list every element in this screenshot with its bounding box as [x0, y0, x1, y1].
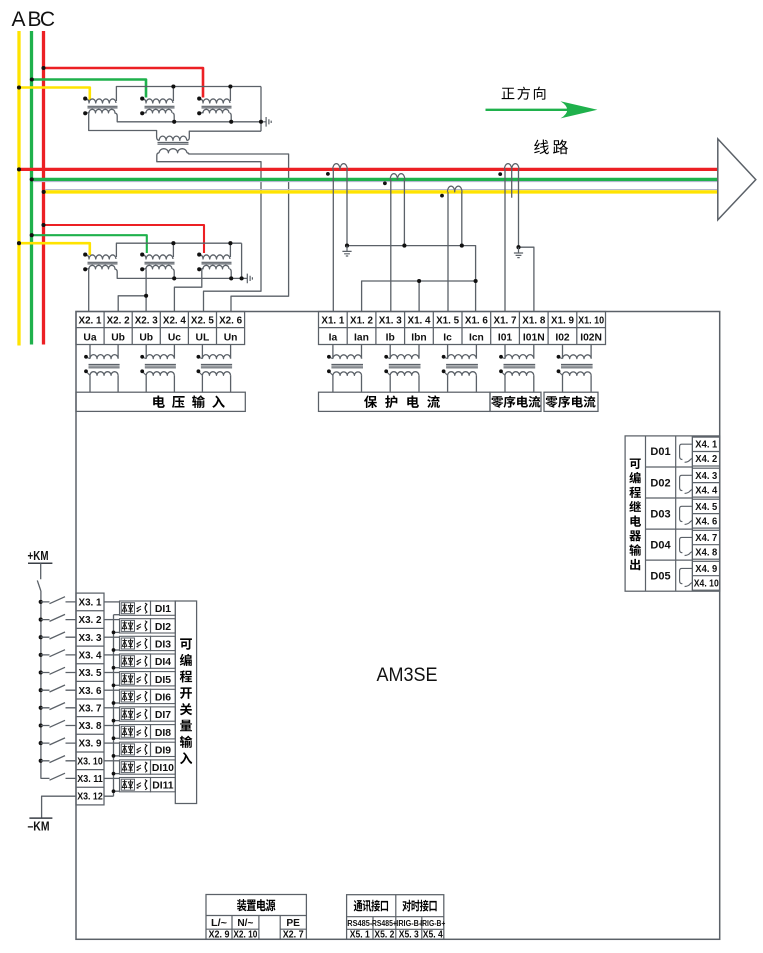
svg-text:X1. 1: X1. 1	[321, 316, 344, 327]
svg-text:X3. 8: X3. 8	[79, 721, 102, 732]
svg-text:X4. 9: X4. 9	[695, 564, 717, 575]
svg-text:X4. 2: X4. 2	[695, 454, 717, 465]
svg-text:X3. 7: X3. 7	[79, 703, 102, 714]
svg-text:X2. 1: X2. 1	[79, 316, 102, 327]
svg-text:X4. 5: X4. 5	[695, 502, 717, 513]
svg-text:DI11: DI11	[152, 781, 174, 792]
svg-text:X2. 2: X2. 2	[107, 316, 130, 327]
svg-text:DI6: DI6	[155, 693, 171, 704]
svg-text:DI2: DI2	[155, 622, 171, 633]
svg-text:IRIG-B+: IRIG-B+	[420, 918, 445, 928]
svg-text:X3. 4: X3. 4	[79, 651, 102, 662]
svg-text:X5. 1: X5. 1	[350, 929, 370, 940]
svg-text:L/~: L/~	[211, 918, 227, 929]
svg-text:X3. 6: X3. 6	[79, 686, 102, 697]
svg-text:I01N: I01N	[523, 332, 545, 343]
svg-text:X4. 10: X4. 10	[694, 578, 719, 589]
svg-text:Ian: Ian	[354, 332, 369, 343]
svg-text:X4. 4: X4. 4	[695, 485, 717, 496]
svg-text:X2. 3: X2. 3	[135, 316, 158, 327]
svg-text:X3. 12: X3. 12	[77, 792, 103, 803]
svg-text:X2. 4: X2. 4	[163, 316, 186, 327]
svg-text:X3. 5: X3. 5	[79, 668, 102, 679]
svg-text:X2. 10: X2. 10	[233, 929, 257, 940]
svg-text:UL: UL	[196, 332, 210, 343]
svg-text:–KM: –KM	[28, 819, 50, 833]
svg-text:RS485-: RS485-	[347, 918, 372, 928]
svg-text:X4. 7: X4. 7	[695, 533, 717, 544]
svg-text:DI7: DI7	[155, 710, 171, 721]
svg-text:DI3: DI3	[155, 640, 171, 651]
svg-text:AM3SE: AM3SE	[377, 664, 438, 686]
svg-text:Ib: Ib	[386, 332, 395, 343]
svg-text:D05: D05	[650, 570, 670, 582]
svg-text:X4. 6: X4. 6	[695, 516, 717, 527]
svg-text:X3. 3: X3. 3	[79, 633, 102, 644]
svg-text:DI9: DI9	[155, 745, 171, 756]
svg-text:D03: D03	[650, 508, 670, 520]
svg-text:Ua: Ua	[83, 332, 96, 343]
svg-text:Ibn: Ibn	[411, 332, 426, 343]
svg-text:X1. 2: X1. 2	[350, 316, 373, 327]
svg-text:X1. 7: X1. 7	[494, 316, 517, 327]
svg-text:I02N: I02N	[580, 332, 602, 343]
svg-text:X2. 9: X2. 9	[209, 929, 230, 940]
svg-text:DI1: DI1	[155, 604, 171, 615]
svg-text:C: C	[40, 8, 55, 31]
svg-text:Uc: Uc	[168, 332, 181, 343]
svg-text:I01: I01	[498, 332, 513, 343]
svg-text:I02: I02	[555, 332, 570, 343]
svg-text:X1. 4: X1. 4	[408, 316, 431, 327]
svg-text:X3. 11: X3. 11	[77, 774, 103, 785]
svg-text:X2. 7: X2. 7	[283, 929, 304, 940]
svg-text:X1. 3: X1. 3	[379, 316, 402, 327]
svg-text:PE: PE	[286, 918, 300, 929]
svg-text:X4. 3: X4. 3	[695, 471, 717, 482]
svg-text:X2. 6: X2. 6	[219, 316, 242, 327]
svg-text:X5. 2: X5. 2	[374, 929, 394, 940]
svg-text:X1. 6: X1. 6	[465, 316, 488, 327]
svg-text:DI4: DI4	[155, 657, 171, 668]
svg-text:Ub: Ub	[111, 332, 125, 343]
svg-text:+KM: +KM	[28, 549, 49, 563]
svg-text:X1. 10: X1. 10	[578, 316, 604, 327]
svg-text:DI10: DI10	[152, 763, 174, 774]
svg-text:Ia: Ia	[329, 332, 338, 343]
svg-text:D04: D04	[650, 539, 671, 551]
svg-text:RS485+: RS485+	[372, 918, 397, 928]
svg-text:X3. 9: X3. 9	[79, 739, 102, 750]
svg-text:DI8: DI8	[155, 728, 171, 739]
svg-text:X5. 3: X5. 3	[399, 929, 419, 940]
svg-text:X1. 9: X1. 9	[551, 316, 574, 327]
svg-text:X2. 5: X2. 5	[191, 316, 214, 327]
svg-text:IRIG-B-: IRIG-B-	[396, 918, 421, 928]
svg-text:X3. 2: X3. 2	[79, 615, 102, 626]
svg-text:DI5: DI5	[155, 675, 171, 686]
svg-text:X3. 1: X3. 1	[79, 598, 102, 609]
svg-text:X4. 8: X4. 8	[695, 547, 717, 558]
svg-text:D02: D02	[650, 477, 670, 489]
svg-text:X5. 4: X5. 4	[423, 929, 443, 940]
svg-text:X3. 10: X3. 10	[77, 756, 103, 767]
svg-text:Un: Un	[224, 332, 238, 343]
svg-text:A: A	[11, 8, 25, 31]
svg-text:Ic: Ic	[443, 332, 452, 343]
svg-text:X4. 1: X4. 1	[695, 440, 717, 451]
svg-text:Ub: Ub	[139, 332, 153, 343]
svg-text:D01: D01	[650, 446, 670, 458]
svg-text:N/~: N/~	[237, 918, 253, 929]
svg-text:X1. 5: X1. 5	[436, 316, 459, 327]
svg-text:Icn: Icn	[469, 332, 484, 343]
svg-text:X1. 8: X1. 8	[522, 316, 545, 327]
